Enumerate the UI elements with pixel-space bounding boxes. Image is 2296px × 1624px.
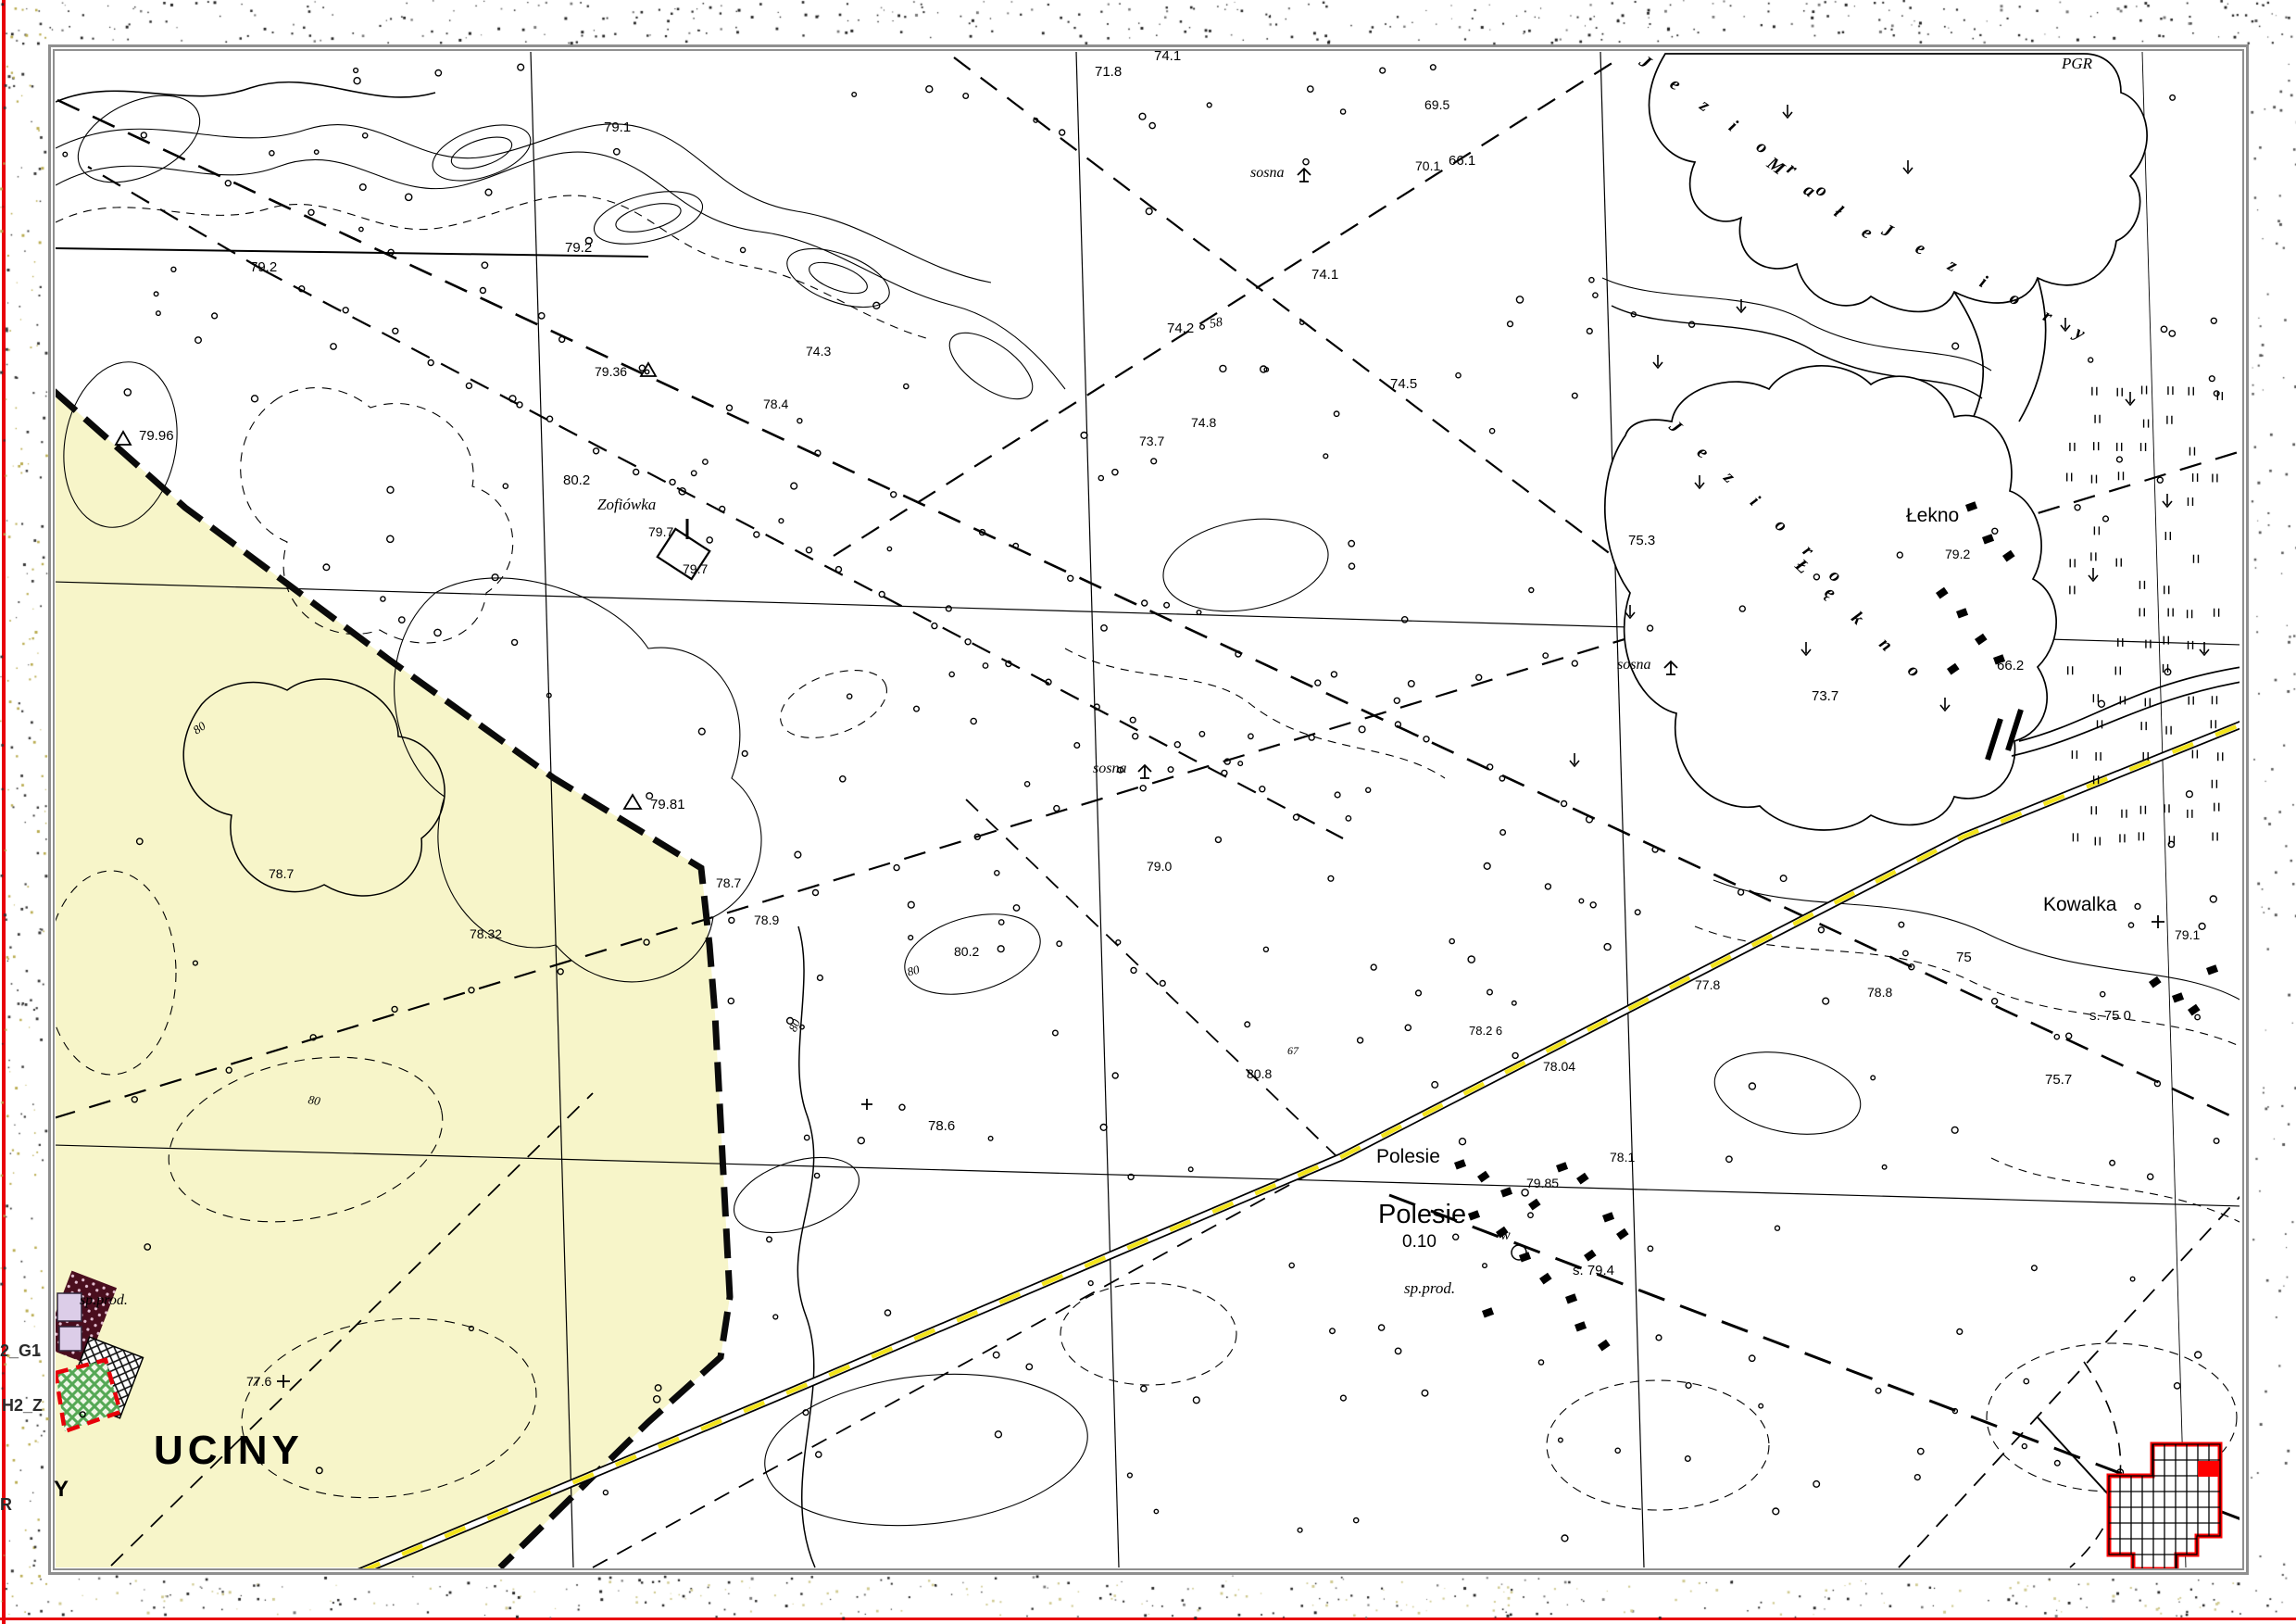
patch-lavender-2 [59, 1327, 82, 1351]
lake-lekno [1605, 366, 2056, 830]
tree-symbols [1138, 169, 1677, 778]
sheet-index-locator[interactable] [2109, 1444, 2220, 1569]
orchard-ticks [2067, 386, 2223, 846]
river-east [2019, 667, 2241, 741]
scanned-topo-map-page: { "map": { "title": "Scanned topographic… [0, 0, 2296, 1624]
patch-lavender-1 [57, 1293, 82, 1321]
zofiowka-building [658, 519, 710, 579]
lake-channel2 [2019, 278, 2046, 422]
plan-zone-yellow [54, 391, 730, 1567]
map-canvas[interactable] [0, 0, 2296, 1624]
current-sheet-cell [2198, 1461, 2220, 1477]
lake-male-jeziory [1650, 54, 2148, 311]
